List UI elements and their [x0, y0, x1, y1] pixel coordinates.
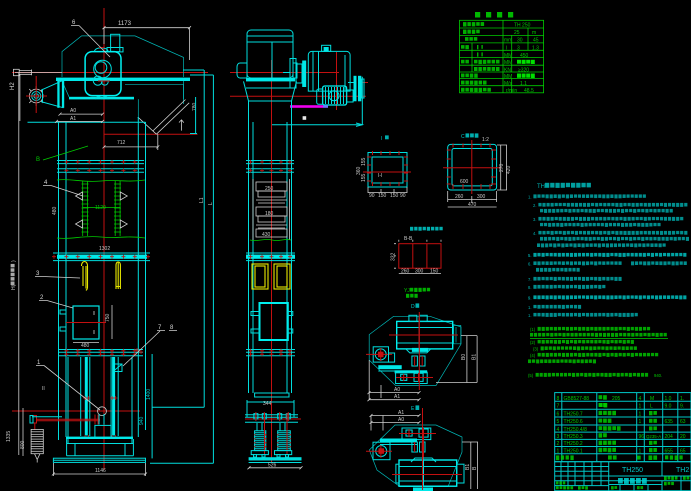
svg-text:1.0: 1.0 — [665, 396, 672, 402]
svg-text:TH250.3: TH250.3 — [564, 434, 583, 440]
svg-text:8.: 8. — [528, 285, 532, 290]
svg-text:25: 25 — [514, 30, 520, 36]
svg-text:B1: B1 — [472, 354, 478, 360]
svg-text:A0: A0 — [394, 387, 400, 393]
svg-text:780: 780 — [192, 102, 198, 111]
svg-text:m: m — [532, 30, 536, 36]
svg-text:2.: 2. — [533, 203, 537, 208]
svg-text:1.: 1. — [528, 195, 532, 200]
svg-text:655: 655 — [665, 448, 674, 454]
svg-text:1: 1 — [639, 419, 642, 425]
svg-text:TH2: TH2 — [676, 467, 689, 474]
svg-text:940.: 940. — [654, 373, 662, 378]
svg-text:7: 7 — [557, 404, 560, 410]
svg-text:30: 30 — [517, 38, 523, 44]
svg-text:1146: 1146 — [95, 468, 106, 474]
svg-text:480: 480 — [81, 343, 90, 349]
svg-text:8: 8 — [557, 396, 560, 402]
svg-text:4: 4 — [557, 427, 560, 433]
svg-text:1400: 1400 — [146, 389, 152, 400]
svg-text:150: 150 — [378, 193, 387, 199]
svg-text:6: 6 — [557, 411, 560, 417]
svg-text:3.: 3. — [533, 217, 537, 222]
svg-text:1: 1 — [639, 448, 642, 454]
svg-text:A1: A1 — [394, 394, 400, 400]
svg-text:1.: 1. — [680, 396, 684, 402]
svg-text:H2: H2 — [10, 82, 16, 90]
svg-text:300: 300 — [477, 194, 486, 200]
svg-text:480: 480 — [52, 206, 58, 215]
svg-text:(1): (1) — [530, 327, 536, 332]
svg-text:TH 250: TH 250 — [514, 23, 531, 29]
svg-text:TH: TH — [537, 184, 545, 190]
svg-text:205: 205 — [612, 396, 621, 402]
svg-text:TH250.1: TH250.1 — [564, 448, 583, 454]
svg-text:II: II — [42, 386, 45, 392]
svg-text:YJ: YJ — [404, 288, 410, 294]
svg-text:(4): (4) — [530, 353, 536, 358]
svg-text:260: 260 — [455, 194, 464, 200]
svg-text:332: 332 — [391, 252, 397, 261]
svg-text:7.: 7. — [528, 277, 532, 282]
svg-text:4.: 4. — [533, 231, 537, 236]
svg-text:TH250: TH250 — [622, 467, 643, 474]
svg-text:1120: 1120 — [95, 205, 106, 211]
svg-text:48.5: 48.5 — [524, 88, 534, 94]
svg-text:(5): (5) — [528, 373, 534, 378]
svg-text:344: 344 — [263, 401, 272, 407]
svg-text:270: 270 — [499, 163, 505, 172]
svg-text:mm: mm — [504, 38, 512, 44]
svg-text:90: 90 — [400, 193, 406, 199]
svg-text:9.0: 9.0 — [665, 404, 672, 410]
svg-text:9.: 9. — [680, 404, 684, 410]
svg-text:90: 90 — [369, 193, 375, 199]
svg-text:150: 150 — [430, 269, 439, 275]
svg-text:65: 65 — [680, 448, 686, 454]
svg-text:1.3: 1.3 — [532, 45, 539, 51]
svg-text:450: 450 — [520, 53, 529, 59]
svg-text:940: 940 — [139, 416, 145, 425]
svg-text:Q235-A: Q235-A — [646, 434, 661, 439]
svg-text:3: 3 — [517, 45, 520, 51]
svg-text:3: 3 — [557, 434, 560, 440]
svg-text:300: 300 — [415, 269, 424, 275]
svg-text:4: 4 — [639, 396, 642, 402]
svg-text:1173: 1173 — [118, 21, 132, 27]
svg-text:l: l — [506, 45, 507, 51]
svg-text:MM: MM — [504, 74, 512, 80]
svg-text:180: 180 — [265, 211, 274, 217]
svg-text:63: 63 — [680, 419, 686, 425]
svg-text:1.: 1. — [528, 313, 532, 318]
svg-text:A0: A0 — [70, 108, 76, 114]
svg-text:H(: H( — [11, 284, 17, 290]
svg-text:420: 420 — [506, 165, 512, 174]
svg-text:r/min: r/min — [506, 88, 517, 94]
svg-text:B0: B0 — [461, 354, 467, 360]
svg-text:B1: B1 — [465, 464, 471, 470]
svg-text:600: 600 — [460, 179, 469, 185]
svg-text:5.: 5. — [528, 253, 532, 258]
svg-text:155: 155 — [361, 157, 367, 166]
svg-text:(2): (2) — [530, 340, 536, 345]
svg-text:GB8527-88: GB8527-88 — [564, 396, 590, 402]
svg-text:150: 150 — [390, 193, 399, 199]
svg-text:B-B: B-B — [404, 236, 413, 242]
svg-text:20: 20 — [680, 434, 686, 440]
svg-text:B: B — [36, 157, 40, 163]
svg-text:1: 1 — [557, 448, 560, 454]
svg-text:MM: MM — [504, 53, 512, 59]
svg-text:M/s: M/s — [504, 81, 513, 87]
svg-text:155: 155 — [361, 173, 367, 182]
svg-text:L: L — [208, 202, 214, 205]
svg-text:L: L — [650, 404, 653, 410]
svg-text:2: 2 — [557, 441, 560, 447]
svg-text:(3): (3) — [533, 347, 539, 352]
svg-text:C: C — [461, 134, 465, 140]
svg-text:712: 712 — [117, 140, 126, 146]
svg-text:TH250.7: TH250.7 — [564, 411, 583, 417]
svg-text:KN: KN — [504, 67, 511, 73]
svg-text:204: 204 — [665, 434, 674, 440]
svg-text:6.: 6. — [528, 262, 532, 267]
svg-text:TH250.4/8: TH250.4/8 — [564, 427, 588, 433]
svg-text:M: M — [650, 396, 654, 402]
svg-text:TH250.6: TH250.6 — [564, 419, 583, 425]
svg-text:635: 635 — [665, 419, 674, 425]
svg-text:430: 430 — [262, 232, 271, 238]
svg-text:L1: L1 — [199, 197, 205, 203]
svg-text:5: 5 — [557, 419, 560, 425]
svg-text:1302: 1302 — [99, 246, 110, 252]
svg-text:1.: 1. — [528, 305, 532, 310]
svg-text:750: 750 — [105, 313, 111, 322]
svg-text:250: 250 — [265, 186, 274, 192]
svg-text:1.1: 1.1 — [520, 81, 527, 87]
svg-text:260: 260 — [401, 269, 410, 275]
svg-text:D: D — [411, 304, 415, 310]
svg-text:I: I — [381, 136, 382, 142]
svg-text:470: 470 — [468, 202, 477, 208]
svg-text:1335: 1335 — [6, 431, 12, 442]
svg-text:1: 1 — [639, 404, 642, 410]
svg-text:I-I: I-I — [378, 173, 382, 179]
svg-text:1:2: 1:2 — [482, 137, 489, 143]
svg-text:45: 45 — [533, 38, 539, 44]
svg-text:1: 1 — [639, 411, 642, 417]
svg-text:≥320: ≥320 — [518, 67, 529, 73]
svg-text:9.: 9. — [528, 296, 532, 301]
svg-text:96: 96 — [639, 434, 645, 440]
svg-text:TH250.2: TH250.2 — [564, 441, 583, 447]
svg-text:MM: MM — [504, 60, 512, 66]
svg-text:526: 526 — [268, 463, 277, 469]
